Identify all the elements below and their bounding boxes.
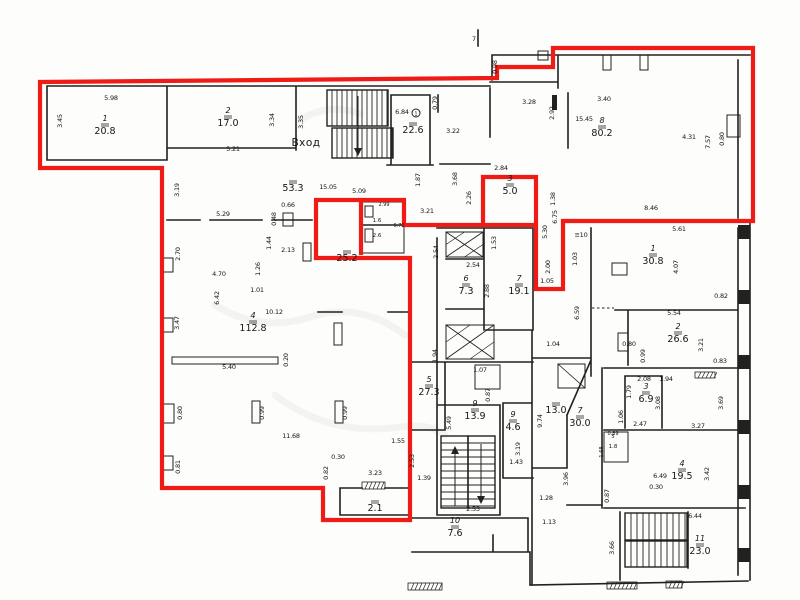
entrance-label: Вход bbox=[291, 137, 320, 149]
hatch-line bbox=[373, 482, 376, 489]
dimension-label: 3.45 bbox=[56, 114, 64, 128]
dimension-label: 5.49 bbox=[445, 416, 453, 430]
dimension-label: 3.21 bbox=[697, 338, 705, 352]
dimension-label: 10.12 bbox=[265, 308, 283, 316]
dimension-label: 2.54 bbox=[466, 261, 480, 269]
dimension-label: 5.61 bbox=[672, 225, 686, 233]
dimension-label: 2.47 bbox=[633, 420, 647, 428]
hatch-box bbox=[695, 372, 715, 378]
dimension-label: 3.66 bbox=[608, 541, 616, 555]
room-area: 17.0 bbox=[217, 118, 238, 129]
room-area: 19.1 bbox=[508, 286, 529, 297]
dimension-label: 0.87 bbox=[603, 489, 611, 503]
room-area: 25.2 bbox=[336, 253, 357, 264]
dimension-label: 1.94 bbox=[431, 349, 439, 363]
dimension-label: 0.89 bbox=[607, 431, 618, 437]
floorplan-svg: 120.8217.053.322.635.0880.225.24112.867.… bbox=[0, 0, 800, 600]
stairs-icon bbox=[327, 90, 687, 567]
room-area: 1.8 bbox=[609, 444, 618, 450]
dimension-label: ≡10 bbox=[574, 231, 587, 239]
hatch-line bbox=[381, 482, 384, 489]
dimension-label: 3.19 bbox=[173, 183, 181, 197]
room-number: 6 bbox=[463, 274, 468, 283]
dimension-label: 0.79 bbox=[431, 96, 439, 110]
room-area: 20.8 bbox=[94, 126, 115, 137]
room-number: 2 bbox=[675, 322, 680, 331]
dimension-label: 1.04 bbox=[546, 340, 560, 348]
room-number: 9 bbox=[472, 399, 477, 408]
hatch-line bbox=[706, 372, 709, 378]
wall-piers bbox=[552, 95, 750, 562]
dimension-label: 3.21 bbox=[420, 207, 434, 215]
dimension-label: 1.07 bbox=[473, 366, 487, 374]
hatch-line bbox=[377, 482, 380, 489]
dimension-label: 2.13 bbox=[281, 246, 295, 254]
unit-outline-highlight bbox=[40, 48, 753, 520]
dimension-label: 1.55 bbox=[391, 437, 405, 445]
dimension-label: 5.54 bbox=[667, 309, 681, 317]
dimension-label: 3.96 bbox=[562, 472, 570, 486]
dimension-label: 5.09 bbox=[352, 187, 366, 195]
dimension-label: 1.13 bbox=[542, 518, 556, 526]
dimension-label: 1.28 bbox=[539, 494, 553, 502]
dimension-label: 3.40 bbox=[597, 95, 611, 103]
dimension-label: 0.30 bbox=[331, 453, 345, 461]
dimension-label: 3.68 bbox=[451, 172, 459, 186]
room-number: 1 bbox=[102, 114, 107, 123]
dimension-label: 0.87 bbox=[484, 388, 492, 402]
dimension-label: 1.39 bbox=[417, 474, 431, 482]
dimension-label: 11.68 bbox=[282, 432, 300, 440]
dimension-label: 0.98 bbox=[491, 60, 499, 74]
detail-mark: 1 bbox=[414, 112, 417, 118]
dimension-label: 6.49 bbox=[653, 472, 667, 480]
dimension-label: 5.40 bbox=[222, 363, 236, 371]
room-number: 4 bbox=[250, 311, 255, 320]
dimension-label: 15.45 bbox=[575, 115, 593, 123]
labels-layer: 120.8217.053.322.635.0880.225.24112.867.… bbox=[56, 35, 728, 557]
dimension-label: 4.70 bbox=[212, 270, 226, 278]
dimension-label: 8.46 bbox=[644, 204, 658, 212]
unit-outline-polygon bbox=[40, 48, 753, 520]
room-area: 5.0 bbox=[502, 186, 517, 197]
dimension-label: 0.48 bbox=[270, 212, 278, 226]
dimension-label: 1.44 bbox=[265, 236, 273, 250]
dimension-label: 1.03 bbox=[571, 252, 579, 266]
room-area: 2.6 bbox=[373, 233, 382, 239]
hatch-line bbox=[423, 583, 426, 590]
dimension-label: 2.00 bbox=[544, 260, 552, 274]
dimension-label: 2.53 bbox=[466, 505, 480, 513]
room-area: 27.3 bbox=[418, 387, 439, 398]
dimension-label: 0.80 bbox=[718, 132, 726, 146]
hatch-line bbox=[369, 482, 372, 489]
room-area: 7.6 bbox=[447, 528, 462, 539]
stairs-flight bbox=[625, 513, 687, 540]
room-area: 13.0 bbox=[545, 405, 566, 416]
dimension-label: 2.70 bbox=[174, 247, 182, 261]
room-number: 5 bbox=[426, 375, 431, 384]
dimension-label: 0.81 bbox=[174, 460, 182, 474]
room-number: 11 bbox=[695, 534, 705, 543]
room-number: 8 bbox=[599, 116, 604, 125]
dimension-label: 3.42 bbox=[703, 467, 711, 481]
room-area: 30.8 bbox=[642, 256, 663, 267]
dimension-label: 1.43 bbox=[509, 458, 523, 466]
dimension-label: 0.82 bbox=[322, 466, 330, 480]
dimension-label: 0.66 bbox=[281, 201, 295, 209]
dimension-label: 5.21 bbox=[226, 145, 240, 153]
hatch-box bbox=[408, 583, 442, 590]
room-number: 9 bbox=[510, 410, 515, 419]
dimension-label: 1.94 bbox=[659, 375, 673, 383]
stairs-flight bbox=[332, 128, 393, 158]
ground-hatch bbox=[362, 372, 717, 590]
dimension-label: 1.05 bbox=[540, 277, 554, 285]
room-area: 53.3 bbox=[282, 183, 303, 194]
dimension-label: 2.26 bbox=[465, 191, 473, 205]
dimension-label: 3.47 bbox=[173, 316, 181, 330]
dimension-label: 3.22 bbox=[446, 127, 460, 135]
dimension-label: 0.99 bbox=[341, 406, 349, 420]
dimension-label: 2.08 bbox=[637, 375, 651, 383]
dimension-label: 0.99 bbox=[258, 406, 266, 420]
dimension-label: 5.29 bbox=[216, 210, 230, 218]
dimension-label: 6.70 bbox=[393, 223, 404, 229]
room-area: 112.8 bbox=[239, 323, 266, 334]
hatch-line bbox=[435, 583, 438, 590]
dimension-label: 9.74 bbox=[536, 414, 544, 428]
dimension-label: 0.20 bbox=[282, 353, 290, 367]
dimension-label: 2.92 bbox=[548, 106, 556, 120]
dimension-label: 6.75 bbox=[551, 210, 559, 224]
room-area: 4.6 bbox=[505, 422, 520, 433]
room-area: 26.6 bbox=[667, 334, 688, 345]
room-area: 1.6 bbox=[373, 218, 382, 224]
dimension-label: 1.01 bbox=[250, 286, 264, 294]
hatch-line bbox=[710, 372, 713, 378]
hatch-line bbox=[702, 372, 705, 378]
dimension-label: 1.79 bbox=[625, 385, 633, 399]
room-number: 10 bbox=[450, 516, 460, 525]
dimension-label: 3.27 bbox=[691, 422, 705, 430]
dimension-label: 1.26 bbox=[254, 262, 262, 276]
dimension-label: 6.59 bbox=[573, 306, 581, 320]
dimension-label: 1.53 bbox=[490, 236, 498, 250]
room-number: 7 bbox=[577, 406, 583, 415]
dimension-label: 0.80 bbox=[176, 406, 184, 420]
hatch-line bbox=[439, 583, 442, 590]
floorplan-scan: 120.8217.053.322.635.0880.225.24112.867.… bbox=[0, 0, 800, 600]
dimension-label: 2.88 bbox=[483, 284, 491, 298]
dimension-label: 7.57 bbox=[704, 135, 712, 149]
dimension-label: 2.54 bbox=[432, 245, 440, 259]
room-number: 7 bbox=[516, 274, 522, 283]
room-number: 3 bbox=[507, 174, 512, 183]
room-area: 7.3 bbox=[458, 286, 473, 297]
dimension-label: 0.80 bbox=[622, 340, 636, 348]
dimension-label: 3.19 bbox=[514, 442, 522, 456]
dimension-label: 1.06 bbox=[617, 410, 625, 424]
dimension-label: 7 bbox=[472, 35, 476, 43]
hatch-line bbox=[698, 372, 701, 378]
stair-arrowhead bbox=[477, 496, 485, 504]
room-area: 22.6 bbox=[402, 125, 423, 136]
shaft-cross bbox=[558, 364, 585, 388]
hatch-line bbox=[419, 583, 422, 590]
room-area: 13.9 bbox=[464, 411, 485, 422]
dimension-label: 2.53 bbox=[408, 454, 416, 468]
dimension-label: 6.44 bbox=[688, 512, 702, 520]
dimension-label: 5.30 bbox=[541, 225, 549, 239]
room-number: 4 bbox=[679, 459, 684, 468]
room-number: 3 bbox=[643, 382, 648, 391]
dimension-label: 3.28 bbox=[522, 98, 536, 106]
dimension-label: 0.99 bbox=[639, 349, 647, 363]
dimension-label: 2.84 bbox=[494, 164, 508, 172]
hatch-line bbox=[431, 583, 434, 590]
dimension-label: 1.68 bbox=[599, 446, 605, 457]
dimension-label: 0.30 bbox=[649, 483, 663, 491]
stair-arrowhead bbox=[354, 148, 362, 156]
hatch-line bbox=[365, 482, 368, 489]
dimension-label: 1.87 bbox=[414, 173, 422, 187]
dimension-label: 6.84 bbox=[395, 108, 409, 116]
hatch-line bbox=[427, 583, 430, 590]
dimension-label: 5.98 bbox=[104, 94, 118, 102]
hatch-line bbox=[714, 372, 717, 378]
dimension-label: 3.69 bbox=[717, 396, 725, 410]
room-number: 2 bbox=[225, 106, 230, 115]
dimension-label: 3.08 bbox=[654, 396, 662, 410]
dimension-label: 0.83 bbox=[713, 357, 727, 365]
dimension-label: 15.05 bbox=[319, 183, 337, 191]
room-area: 6.9 bbox=[638, 394, 653, 405]
room-area: 30.0 bbox=[569, 418, 590, 429]
room-area: 23.0 bbox=[689, 546, 710, 557]
room-area: 2.1 bbox=[367, 503, 382, 514]
dimension-label: 6.42 bbox=[213, 291, 221, 305]
dimension-label: 3.23 bbox=[368, 469, 382, 477]
dimension-label: 2.99 bbox=[378, 202, 389, 208]
room-number: 1 bbox=[650, 244, 655, 253]
dimension-label: 3.35 bbox=[297, 115, 305, 129]
hatch-line bbox=[415, 583, 418, 590]
room-area: 19.5 bbox=[671, 471, 692, 482]
dimension-label: 3.34 bbox=[268, 113, 276, 127]
dimension-label: 1.38 bbox=[549, 192, 557, 206]
hatch-line bbox=[411, 583, 414, 590]
dimension-label: 4.07 bbox=[672, 260, 680, 274]
dimension-label: 4.31 bbox=[682, 133, 696, 141]
room-area: 80.2 bbox=[591, 128, 612, 139]
dimension-label: 0.82 bbox=[714, 292, 728, 300]
stairs-flight bbox=[625, 541, 687, 567]
